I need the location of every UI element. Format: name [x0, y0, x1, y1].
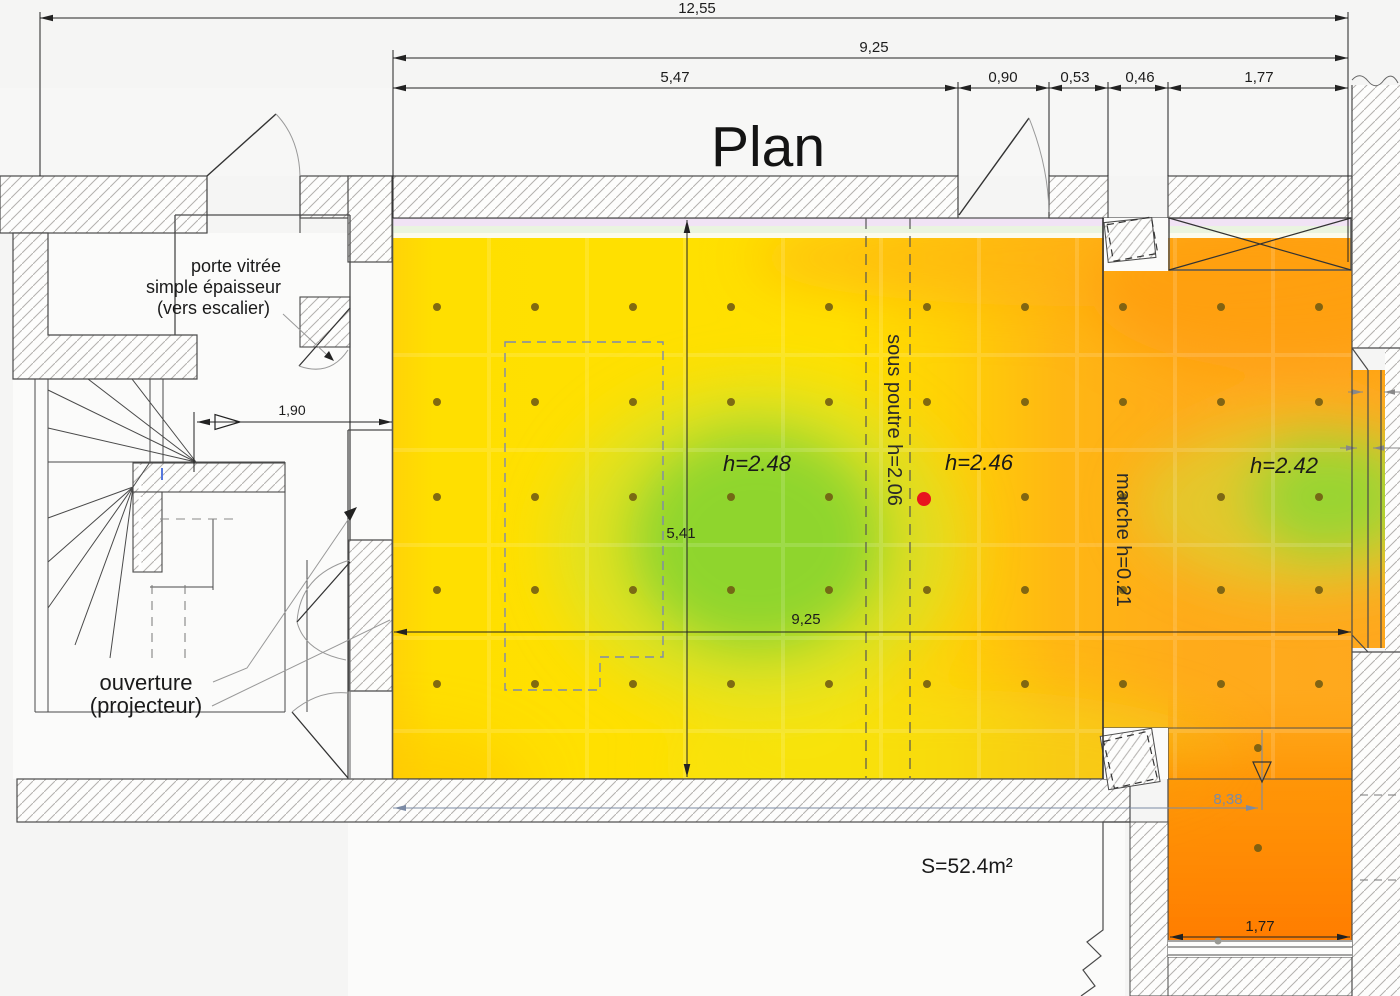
measurement-marker-red	[917, 492, 931, 506]
measurement-dot	[531, 398, 539, 406]
measurement-dot	[531, 303, 539, 311]
measurement-dot	[433, 586, 441, 594]
measurement-dot	[923, 680, 931, 688]
dim-room-depth: 5,41	[666, 525, 695, 542]
measurement-dot	[531, 493, 539, 501]
measurement-dot	[923, 586, 931, 594]
step-label: marche h=0.21	[1112, 473, 1134, 607]
glass-door-label-1: porte vitrée	[191, 256, 281, 276]
measurement-dot	[1119, 303, 1127, 311]
measurement-dot	[727, 493, 735, 501]
measurement-dot	[1119, 398, 1127, 406]
beam-label: sous poutre h=2.06	[883, 334, 905, 506]
projector-opening-top	[1104, 217, 1158, 262]
measurement-dot	[825, 493, 833, 501]
measurement-dot	[1021, 398, 1029, 406]
strip-cream	[393, 233, 1352, 238]
measurement-dot	[825, 586, 833, 594]
measurement-dot	[433, 398, 441, 406]
measurement-dot	[923, 398, 931, 406]
measurement-dot	[531, 586, 539, 594]
dim-top-width: 9,25	[859, 39, 888, 56]
measurement-dot	[1217, 680, 1225, 688]
dim-seg5: 1,77	[1244, 69, 1273, 86]
dim-overall: 12,55	[678, 0, 716, 17]
measurement-dot	[1119, 680, 1127, 688]
measurement-dot	[1021, 586, 1029, 594]
strip-lavender	[393, 218, 1352, 226]
dim-seg4: 0,46	[1125, 69, 1154, 86]
measurement-dot	[629, 398, 637, 406]
floor-plan-page: Plan 12,55 9,25 5,47 0,90 0,53 0,46 1,77…	[0, 0, 1400, 996]
dim-corridor: 1,90	[278, 402, 305, 418]
measurement-dot	[1217, 303, 1225, 311]
measurement-dot	[1315, 680, 1323, 688]
exterior-strip	[0, 88, 1352, 176]
bottom-window-sill	[1168, 938, 1352, 958]
measurement-dot	[1021, 680, 1029, 688]
measurement-dot	[1217, 493, 1225, 501]
measurement-dot	[629, 493, 637, 501]
measurement-dot	[825, 680, 833, 688]
measurement-dot	[1315, 493, 1323, 501]
measurement-dot	[727, 398, 735, 406]
dim-seg2: 0,90	[988, 69, 1017, 86]
measurement-dot	[923, 303, 931, 311]
dim-seg1: 5,47	[660, 69, 689, 86]
measurement-dot	[629, 586, 637, 594]
measurement-dot	[1315, 303, 1323, 311]
projector-opening-bottom	[1100, 728, 1160, 789]
dim-inner-width: 9,25	[791, 611, 820, 628]
height-center: h=2.48	[723, 451, 792, 476]
glass-door-label-3: (vers escalier)	[157, 298, 270, 318]
opening-label-1: ouverture	[100, 670, 193, 695]
measurement-dot	[531, 680, 539, 688]
measurement-dot	[727, 586, 735, 594]
measurement-dot	[1254, 844, 1262, 852]
measurement-dot	[1254, 744, 1262, 752]
area-label: S=52.4m²	[921, 855, 1013, 878]
measurement-dot	[1217, 586, 1225, 594]
measurement-dot	[825, 398, 833, 406]
measurement-dot	[433, 493, 441, 501]
measurement-dot	[1315, 586, 1323, 594]
glass-door-label-2: simple épaisseur	[146, 277, 281, 297]
measurement-dot	[825, 303, 833, 311]
height-right: h=2.42	[1250, 453, 1318, 478]
floor-plan-drawing: Plan 12,55 9,25 5,47 0,90 0,53 0,46 1,77…	[0, 0, 1400, 996]
opening-label-2: (projecteur)	[90, 693, 202, 718]
measurement-dot	[1217, 398, 1225, 406]
measurement-dot	[1315, 398, 1323, 406]
measurement-dot	[629, 680, 637, 688]
plan-title: Plan	[711, 115, 825, 179]
measurement-dot	[1021, 493, 1029, 501]
lower-room	[348, 822, 1125, 996]
measurement-dot	[433, 680, 441, 688]
measurement-dot	[1021, 303, 1029, 311]
dim-window: 1,77	[1245, 918, 1274, 935]
measurement-dot	[629, 303, 637, 311]
dim-seg3: 0,53	[1060, 69, 1089, 86]
measurement-dot	[433, 303, 441, 311]
dim-offset: 8,38	[1213, 791, 1242, 808]
measurement-dot	[727, 680, 735, 688]
height-mid: h=2.46	[945, 450, 1014, 475]
measurement-dot	[727, 303, 735, 311]
